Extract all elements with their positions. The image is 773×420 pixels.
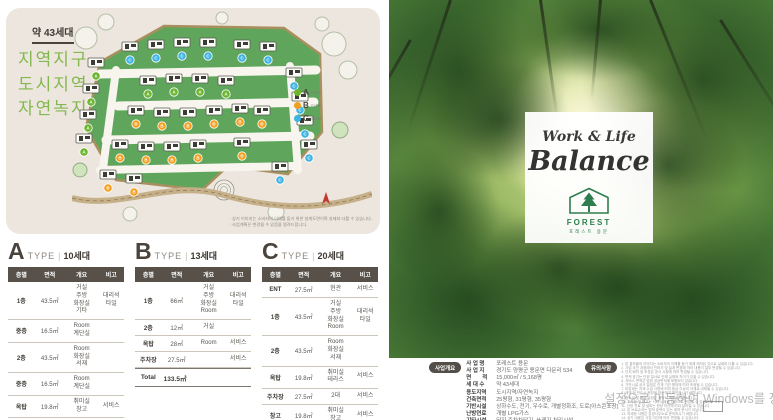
house-glyph xyxy=(263,44,267,49)
internal-road xyxy=(100,70,316,74)
house-glyph xyxy=(141,144,145,149)
table-title-separator: | xyxy=(58,251,60,261)
house-glyph xyxy=(167,144,171,149)
table-title-separator: | xyxy=(185,251,187,261)
cell-floor: 중층 xyxy=(8,379,35,388)
cell-area: 43.5㎡ xyxy=(289,312,319,321)
cell-floor: ENT xyxy=(262,287,289,293)
note-line: 서비스 xyxy=(352,286,378,294)
note-line: 서비스 xyxy=(352,412,378,420)
cell-desc: Room계단실 xyxy=(65,376,99,392)
table-row: 창고19.8㎡취미실창고서비스 xyxy=(262,405,378,420)
house-glyph xyxy=(121,142,126,145)
cell-area: 43.5㎡ xyxy=(35,353,65,362)
notice-line: 14. 상기 내용은 사업 여건에 따라 변경될 수 있습니다. xyxy=(621,416,773,420)
house-glyph xyxy=(243,42,248,45)
house-glyph xyxy=(237,140,241,145)
house-glyph xyxy=(199,142,204,145)
house-glyph xyxy=(201,76,206,79)
house-glyph xyxy=(85,136,90,139)
cell-desc: 취미실창고 xyxy=(319,408,353,420)
desc-line: 화장실 xyxy=(319,347,353,355)
cell-area: 43.5㎡ xyxy=(35,296,65,305)
balance-text: Balance xyxy=(525,146,653,177)
house-glyph xyxy=(269,44,274,47)
house-glyph xyxy=(175,76,180,79)
overview-value: 개별 LPG가스 xyxy=(496,412,529,418)
desc-line: 계단실 xyxy=(65,331,99,339)
cell-area: 19.8㎡ xyxy=(289,411,319,420)
cell-area: 27.5㎡ xyxy=(162,355,192,364)
column-header: 비고 xyxy=(352,270,378,279)
note-line: 타일 xyxy=(98,301,124,309)
desc-line: 테라스 xyxy=(319,377,353,385)
cell-floor: 2층 xyxy=(262,346,289,355)
cell-desc: 거실주방화장실Room xyxy=(192,285,226,316)
tree-icon xyxy=(216,12,228,24)
cell-floor: 옥탑 xyxy=(8,402,35,411)
house-glyph xyxy=(177,40,181,45)
note-line: 서비스 xyxy=(352,373,378,381)
cell-area: 28㎡ xyxy=(162,339,192,348)
house-glyph xyxy=(163,110,168,113)
overview-label: 용도지역 xyxy=(466,391,492,397)
legend-dot-B xyxy=(294,102,301,109)
house-glyph xyxy=(169,76,173,81)
house-glyph xyxy=(241,106,246,109)
house-glyph xyxy=(115,142,119,147)
house-glyph xyxy=(147,144,152,147)
desc-line: 창고 xyxy=(319,416,353,420)
map-disclaimer: · 상기 이미지는 소비자의 이해를 돕기 위한 설계도면이며 실제와 다를 수… xyxy=(230,216,373,229)
cell-note: 서비스 xyxy=(225,340,251,348)
table-letter: B xyxy=(135,240,152,263)
overview-label: 사 업 명 xyxy=(466,362,492,368)
cell-note: 서비스 xyxy=(352,286,378,294)
cell-area: 16.5㎡ xyxy=(35,379,65,388)
units-count-label: 약 43세대 xyxy=(32,24,74,44)
cell-floor: 2층 xyxy=(135,323,162,332)
table-row: 주차장27.5㎡서비스 xyxy=(135,352,251,368)
cell-floor: 주차장 xyxy=(135,355,162,364)
house-glyph xyxy=(221,78,225,83)
desc-line: 2대 xyxy=(319,393,353,401)
desc-line: 화장실 xyxy=(319,317,353,325)
column-header: 개요 xyxy=(319,270,353,279)
house-glyph xyxy=(149,78,154,81)
house-glyph xyxy=(103,172,107,177)
house-glyph xyxy=(137,108,142,111)
table-title-C: CTYPE|20세대 xyxy=(262,240,378,263)
desc-line: Room xyxy=(65,346,99,354)
forest-logo-subtext: 포레스트 용문 xyxy=(525,229,653,235)
column-header: 층별 xyxy=(262,270,289,279)
tree-icon xyxy=(332,122,348,138)
cell-floor: 1층 xyxy=(135,296,162,305)
column-header: 비고 xyxy=(98,270,124,279)
desc-line: 창고 xyxy=(65,407,99,415)
table-letter: C xyxy=(262,240,279,263)
house-glyph xyxy=(281,164,286,167)
column-header: 개요 xyxy=(192,270,226,279)
table-letter: A xyxy=(8,240,25,263)
desc-line: 거실 xyxy=(65,285,99,293)
cell-floor: 중층 xyxy=(8,326,35,335)
house-glyph xyxy=(183,40,188,43)
house-glyph xyxy=(157,42,162,45)
column-header: 층별 xyxy=(8,270,35,279)
house-glyph xyxy=(97,60,102,63)
column-header: 비고 xyxy=(225,270,251,279)
cell-desc: Room화장실서재 xyxy=(65,346,99,369)
house-glyph xyxy=(91,60,95,65)
cell-area: 43.5㎡ xyxy=(289,346,319,355)
house-glyph xyxy=(109,172,114,175)
desc-line: Room xyxy=(192,308,226,316)
table-row: 옥탑28㎡Room서비스 xyxy=(135,336,251,352)
house-glyph xyxy=(193,142,197,147)
cell-desc: Room계단실 xyxy=(65,323,99,339)
legend-letter: B xyxy=(303,101,309,110)
table-title-separator: | xyxy=(312,251,314,261)
tree-icon xyxy=(73,163,87,177)
table-units-count: 10세대 xyxy=(63,249,90,262)
forest-house-tree-icon xyxy=(568,187,610,214)
desc-line: 화장실 xyxy=(192,301,226,309)
desc-line: 서재 xyxy=(65,361,99,369)
table-row: 중층16.5㎡Room계단실 xyxy=(8,373,124,396)
table-row: ENT27.5㎡현관서비스 xyxy=(262,282,378,298)
balance-card: Work & Life Balance FOREST 포레스트 용문 xyxy=(525,112,653,243)
tree-icon xyxy=(98,14,114,30)
desc-line: Room xyxy=(65,376,99,384)
total-value: 133.5㎡ xyxy=(162,373,192,383)
desc-line: 주방 xyxy=(65,293,99,301)
type-table-A: ATYPE|10세대층별면적개요비고1층43.5㎡거실주방화장실기타대리석타일중… xyxy=(8,240,124,420)
table-row: 2층12㎡거실 xyxy=(135,320,251,336)
cell-desc: 거실 xyxy=(192,324,226,332)
house-glyph xyxy=(131,108,135,113)
legend-letter: A xyxy=(303,88,309,97)
cell-desc: 2대 xyxy=(319,393,353,401)
cell-desc: 취미실테라스 xyxy=(319,370,353,386)
column-header: 층별 xyxy=(135,270,162,279)
house-glyph xyxy=(189,110,194,113)
cell-desc: 거실주방화장실Room xyxy=(319,301,353,332)
tree-icon xyxy=(339,61,357,79)
cell-area: 12㎡ xyxy=(162,323,192,332)
house-glyph xyxy=(215,108,220,111)
internal-road xyxy=(118,102,314,106)
house-glyph xyxy=(275,164,279,169)
table-row: 주차장27.5㎡2대서비스 xyxy=(262,389,378,405)
legend-word: TYPE xyxy=(311,103,321,108)
cell-area: 16.5㎡ xyxy=(35,326,65,335)
legend-word: TYPE xyxy=(311,116,321,121)
overview-label: 기반시설 xyxy=(466,405,492,411)
overview-value: 약 43세대 xyxy=(496,383,519,389)
cell-floor: 창고 xyxy=(262,411,289,420)
cell-floor: 옥탑 xyxy=(262,373,289,382)
house-glyph xyxy=(203,40,207,45)
legend-dot-A xyxy=(294,89,301,96)
house-glyph xyxy=(79,136,83,141)
legend-dot-C xyxy=(294,115,301,122)
table-row: 1층43.5㎡거실주방화장실Room대리석타일 xyxy=(262,298,378,336)
column-header: 개요 xyxy=(65,270,99,279)
desc-line: Room xyxy=(319,324,353,332)
house-glyph xyxy=(310,142,315,145)
house-glyph xyxy=(157,110,161,115)
house-glyph xyxy=(235,106,239,111)
cell-note: 대리석타일 xyxy=(98,293,124,309)
site-plan-card: 약 43세대 지역지구 도시지역 자연녹지 AAAAAAAABBBBBBBBBB… xyxy=(6,8,380,234)
legend-item-B: BTYPE xyxy=(294,101,321,110)
overview-label: 난방연료 xyxy=(466,412,492,418)
internal-road xyxy=(100,166,294,170)
cell-floor: 주차장 xyxy=(262,392,289,401)
cell-note: 서비스 xyxy=(225,356,251,364)
internal-road xyxy=(106,136,310,140)
cell-area: 66㎡ xyxy=(162,296,192,305)
house-glyph xyxy=(257,108,261,113)
overview-value: 포레스트 용문 xyxy=(496,362,528,368)
map-note-line: · 사업계획은 변경될 수 있음을 알려드립니다. xyxy=(230,222,373,229)
type-table-B: BTYPE|13세대층별면적개요비고1층66㎡거실주방화장실Room대리석타일2… xyxy=(135,240,251,420)
house-glyph xyxy=(129,176,133,181)
note-line: 서비스 xyxy=(225,356,251,364)
cell-note: 서비스 xyxy=(98,403,124,411)
desc-line: 주방 xyxy=(192,293,226,301)
house-glyph xyxy=(143,78,147,83)
tree-icon xyxy=(322,32,346,56)
table-units-count: 20세대 xyxy=(317,249,344,262)
house-glyph xyxy=(209,108,213,113)
windows-activation-watermark: 설정으로 이동하여 Windows를 정품 인증하십시오. xyxy=(604,388,773,407)
table-type-word: TYPE xyxy=(282,251,310,261)
overview-badge: 사업개요 xyxy=(429,362,461,373)
table-row: 2층43.5㎡Room화장실서재 xyxy=(262,336,378,366)
column-header: 면적 xyxy=(35,270,65,279)
table-row: 1층43.5㎡거실주방화장실기타대리석타일 xyxy=(8,282,124,320)
house-glyph xyxy=(125,44,129,49)
cell-note: 서비스 xyxy=(352,393,378,401)
house-glyph xyxy=(183,110,187,115)
table-type-word: TYPE xyxy=(28,251,56,261)
type-table-C: CTYPE|20세대층별면적개요비고ENT27.5㎡현관서비스1층43.5㎡거실… xyxy=(262,240,378,420)
house-glyph xyxy=(209,40,214,43)
desc-line: 서재 xyxy=(319,355,353,363)
house-glyph xyxy=(86,86,90,91)
work-life-text: Work & Life xyxy=(525,129,653,145)
note-line: 타일 xyxy=(352,317,378,325)
cell-area: 19.8㎡ xyxy=(289,373,319,382)
overview-label: 세 대 수 xyxy=(466,383,492,389)
cell-desc: Room화장실서재 xyxy=(319,339,353,362)
house-glyph xyxy=(83,112,87,117)
legend-letter: C xyxy=(303,114,309,123)
cell-note: 서비스 xyxy=(352,373,378,381)
overview-value: 25평형, 31평형, 35평형 xyxy=(496,398,551,404)
house-glyph xyxy=(173,144,178,147)
brochure-page: 약 43세대 지역지구 도시지역 자연녹지 AAAAAAAABBBBBBBBBB… xyxy=(0,0,773,420)
table-header-row: 층별면적개요비고 xyxy=(8,267,124,282)
type-tables: ATYPE|10세대층별면적개요비고1층43.5㎡거실주방화장실기타대리석타일중… xyxy=(8,240,378,420)
table-header-row: 층별면적개요비고 xyxy=(262,267,378,282)
column-header: 면적 xyxy=(162,270,192,279)
table-title-A: ATYPE|10세대 xyxy=(8,240,124,263)
desc-line: 취미실 xyxy=(319,408,353,416)
type-legend: ATYPEBTYPECTYPE xyxy=(294,88,321,123)
total-label: Total xyxy=(135,374,162,381)
house-glyph xyxy=(237,42,241,47)
cell-note: 대리석타일 xyxy=(352,309,378,325)
note-line: 대리석 xyxy=(352,309,378,317)
forest-logo: FOREST 포레스트 용문 xyxy=(525,187,653,235)
legend-item-A: ATYPE xyxy=(294,88,321,97)
cell-area: 19.8㎡ xyxy=(35,402,65,411)
tree-icon xyxy=(123,207,137,221)
table-row: 옥탑19.8㎡취미실테라스서비스 xyxy=(262,367,378,390)
desc-line: 거실 xyxy=(192,285,226,293)
cell-floor: 1층 xyxy=(8,296,35,305)
note-line: 타일 xyxy=(225,301,251,309)
desc-line: 주방 xyxy=(319,309,353,317)
note-line: 대리석 xyxy=(98,293,124,301)
desc-line: Room xyxy=(192,340,226,348)
tree-icon xyxy=(75,27,97,49)
house-glyph xyxy=(227,78,232,81)
house-glyph xyxy=(151,42,155,47)
tree-icon xyxy=(315,17,329,31)
column-header: 면적 xyxy=(289,270,319,279)
site-plan-map: AAAAAAAABBBBBBBBBBBBBCCCCCCCCCCC xyxy=(72,10,372,222)
overview-label: 건축면적 xyxy=(466,398,492,404)
cell-floor: 2층 xyxy=(8,353,35,362)
table-row: 2층43.5㎡Room화장실서재 xyxy=(8,343,124,373)
cell-note: 서비스 xyxy=(352,412,378,420)
desc-line: Room xyxy=(319,339,353,347)
stamp-box xyxy=(703,401,723,412)
table-title-B: BTYPE|13세대 xyxy=(135,240,251,263)
cell-desc: Room xyxy=(192,340,226,348)
cell-area: 27.5㎡ xyxy=(289,285,319,294)
note-line: 서비스 xyxy=(98,403,124,411)
desc-line: Room xyxy=(65,323,99,331)
table-type-word: TYPE xyxy=(155,251,183,261)
house-glyph xyxy=(289,70,293,75)
house-glyph xyxy=(135,176,140,179)
table-row: 1층66㎡거실주방화장실Room대리석타일 xyxy=(135,282,251,320)
cell-desc: 거실주방화장실기타 xyxy=(65,285,99,316)
cell-area: 27.5㎡ xyxy=(289,392,319,401)
forest-logo-text: FOREST xyxy=(525,218,653,227)
table-row: 중층16.5㎡Room계단실 xyxy=(8,320,124,343)
cell-desc: 현관 xyxy=(319,286,353,294)
desc-line: 취미실 xyxy=(65,399,99,407)
overview-value: 도시지역/자연녹지 xyxy=(496,391,538,397)
house-glyph xyxy=(89,112,94,115)
desc-line: 기타 xyxy=(65,308,99,316)
legend-word: TYPE xyxy=(311,90,321,95)
table-total-row: Total133.5㎡ xyxy=(135,368,251,387)
note-line: 서비스 xyxy=(225,340,251,348)
table-row: 옥탑19.8㎡취미실창고서비스 xyxy=(8,396,124,419)
house-glyph xyxy=(131,44,136,47)
note-line: 서비스 xyxy=(352,393,378,401)
house-glyph xyxy=(295,70,300,73)
notices-badge: 유의사항 xyxy=(585,362,617,373)
forest-photo: Work & Life Balance FOREST 포레스트 용문 xyxy=(389,0,773,358)
cell-floor: 1층 xyxy=(262,312,289,321)
legend-item-C: CTYPE xyxy=(294,114,321,123)
table-header-row: 층별면적개요비고 xyxy=(135,267,251,282)
note-line: 대리석 xyxy=(225,293,251,301)
house-glyph xyxy=(304,142,308,147)
desc-line: 현관 xyxy=(319,286,353,294)
foliage-blob xyxy=(543,232,693,342)
desc-line: 거실 xyxy=(319,301,353,309)
cell-note: 대리석타일 xyxy=(225,293,251,309)
house-glyph xyxy=(263,108,268,111)
house-glyph xyxy=(195,76,199,81)
house-glyph xyxy=(92,86,97,89)
cell-desc: 취미실창고 xyxy=(65,399,99,415)
table-units-count: 13세대 xyxy=(190,249,217,262)
cell-floor: 옥탑 xyxy=(135,339,162,348)
desc-line: 계단실 xyxy=(65,384,99,392)
house-glyph xyxy=(243,140,248,143)
desc-line: 거실 xyxy=(192,324,226,332)
